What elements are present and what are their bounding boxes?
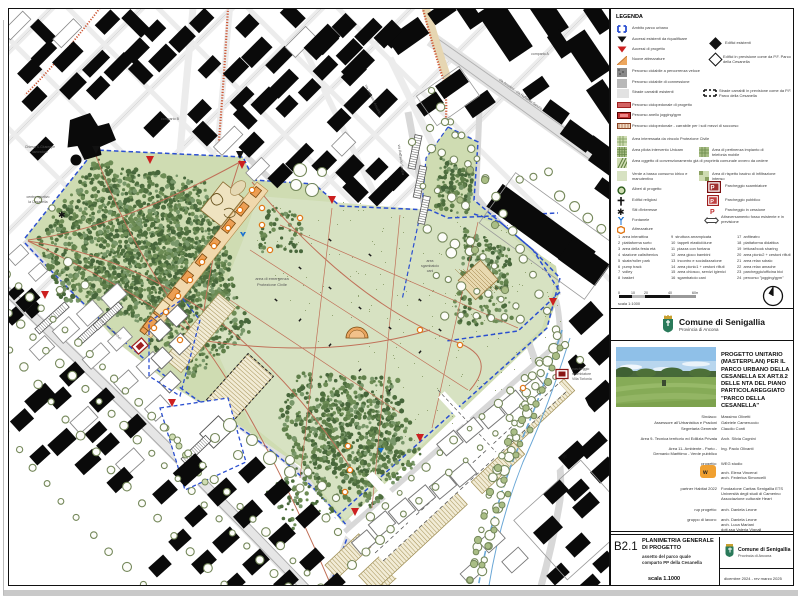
- svg-text:P: P: [710, 209, 715, 215]
- svg-text:P: P: [711, 186, 715, 192]
- svg-text:0: 0: [618, 291, 620, 295]
- svg-text:40: 40: [668, 291, 672, 295]
- svg-text:P: P: [710, 199, 714, 205]
- svg-text:w: w: [702, 470, 708, 476]
- svg-text:✱: ✱: [617, 207, 625, 216]
- svg-text:20: 20: [644, 291, 648, 295]
- svg-text:10: 10: [631, 291, 635, 295]
- svg-text:60m: 60m: [692, 291, 698, 295]
